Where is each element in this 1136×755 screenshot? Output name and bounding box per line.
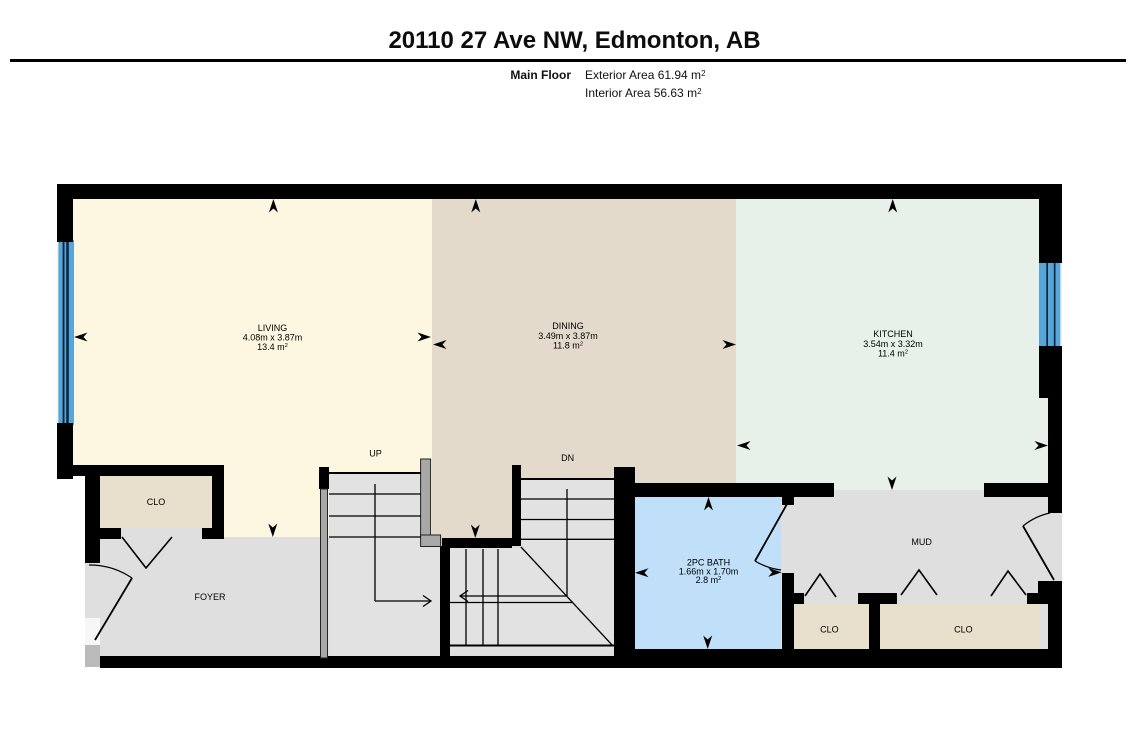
svg-text:MUD: MUD <box>911 537 932 547</box>
svg-text:KITCHEN: KITCHEN <box>873 329 913 339</box>
svg-text:11.8 m2: 11.8 m2 <box>553 341 583 351</box>
svg-text:2.8 m2: 2.8 m2 <box>696 575 722 585</box>
svg-text:CLO: CLO <box>954 625 973 635</box>
svg-text:LIVING: LIVING <box>258 323 288 333</box>
svg-text:UP: UP <box>369 449 382 459</box>
svg-text:4.08m x 3.87m: 4.08m x 3.87m <box>243 333 303 343</box>
svg-text:11.4 m2: 11.4 m2 <box>878 349 908 359</box>
svg-text:3.54m x 3.32m: 3.54m x 3.32m <box>863 339 923 349</box>
svg-text:DINING: DINING <box>552 321 584 331</box>
svg-text:DN: DN <box>561 453 574 463</box>
svg-text:3.49m x 3.87m: 3.49m x 3.87m <box>538 331 598 341</box>
svg-text:CLO: CLO <box>820 625 839 635</box>
svg-text:13.4 m2: 13.4 m2 <box>257 342 288 352</box>
svg-text:FOYER: FOYER <box>194 592 226 602</box>
svg-text:CLO: CLO <box>147 497 166 507</box>
